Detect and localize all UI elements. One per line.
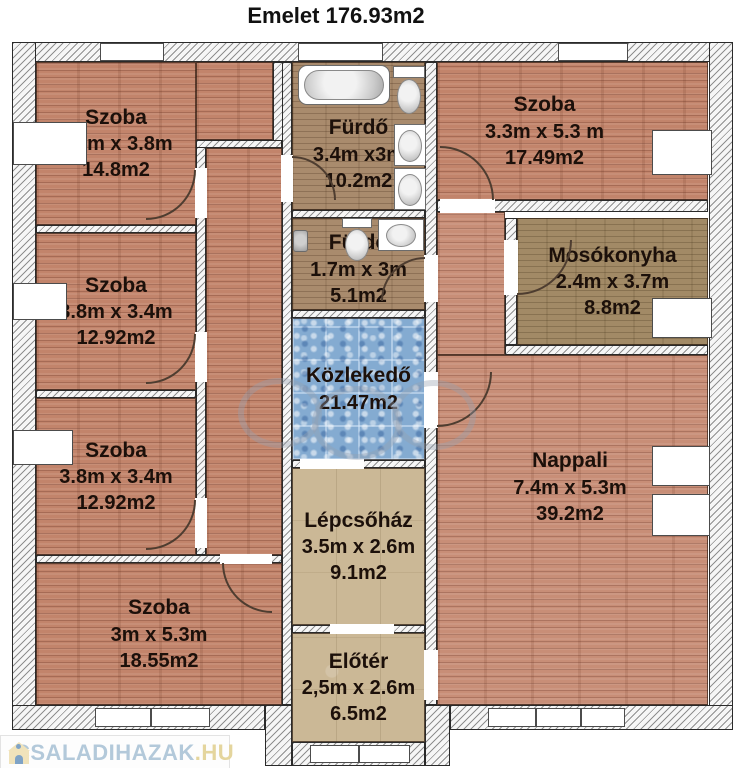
room-name: Szoba [128, 594, 190, 621]
door-gap [504, 240, 518, 295]
room-name: Szoba [514, 91, 576, 118]
window [652, 494, 710, 536]
window-mullion [358, 745, 360, 763]
center-watermark [312, 386, 402, 460]
room-dims: 3.5m x 2.6m [302, 534, 415, 560]
door-gap [440, 199, 495, 213]
bathtub-basin [304, 70, 384, 100]
toilet-bowl [397, 79, 421, 114]
floor-plan: Emelet 176.93m2 Szoba 3.3m x 3.8m 14.8m2… [0, 0, 744, 768]
window [652, 130, 712, 175]
room-dims: 7.4m x 5.3m [513, 475, 626, 501]
wall-h9 [505, 345, 708, 355]
window-mullion [535, 708, 537, 727]
window [652, 446, 710, 486]
toilet-tank [342, 218, 372, 228]
room-area: 17.49m2 [505, 145, 584, 171]
window [13, 430, 73, 465]
window [558, 43, 628, 61]
door-gap [195, 168, 207, 218]
washbasin-bowl [398, 130, 422, 162]
wall-h5 [292, 310, 425, 318]
room-szoba-top-left-extension [196, 62, 273, 140]
corridor-strip [206, 148, 282, 555]
room-name: Szoba [85, 437, 147, 464]
washbasin [378, 219, 424, 251]
window [13, 122, 87, 165]
washbasin [394, 124, 426, 166]
logo-domain: CSALADIHAZAK [14, 740, 195, 765]
porch-pillar-left [265, 705, 292, 766]
washbasin [394, 168, 426, 210]
room-eloter: Előtér 2,5m x 2.6m 6.5m2 [292, 633, 425, 742]
toilet-bowl [345, 229, 369, 261]
wall-outer-right [709, 42, 733, 730]
room-area: 5.1m2 [330, 283, 387, 309]
window [298, 43, 383, 61]
room-lepcsohaz: Lépcsőház 3.5m x 2.6m 9.1m2 [292, 468, 425, 625]
room-name: Lépcsőház [304, 507, 413, 534]
room-dims: 3.8m x 3.4m [59, 464, 172, 490]
room-area: 8.8m2 [584, 295, 641, 321]
window [100, 43, 164, 61]
door-gap [300, 459, 364, 469]
shower-fixture [293, 230, 308, 252]
room-area: 6.5m2 [330, 701, 387, 727]
window-mullion [150, 708, 152, 727]
bathtub [298, 65, 390, 105]
room-dims: 3.4m x3m [313, 142, 404, 168]
room-area: 39.2m2 [536, 501, 604, 527]
room-area: 12.92m2 [77, 325, 156, 351]
porch-pillar-right [425, 705, 450, 766]
room-dims: 3.3m x 5.3 m [485, 119, 604, 145]
center-watermark [238, 378, 322, 448]
room-name: Szoba [85, 104, 147, 131]
nappali-passage [437, 212, 505, 355]
wall-niche-bottom [196, 140, 282, 148]
door-gap [330, 624, 394, 634]
window [488, 708, 625, 727]
center-watermark [392, 380, 476, 450]
room-area: 18.55m2 [120, 648, 199, 674]
door-gap [195, 498, 207, 548]
room-area: 14.8m2 [82, 157, 150, 183]
window [652, 298, 712, 338]
window [310, 745, 410, 763]
room-name: Előtér [329, 648, 389, 675]
wall-h1 [36, 225, 196, 233]
logo-tld: .HU [195, 740, 234, 765]
room-dims: 3m x 5.3m [111, 622, 208, 648]
room-name: Fürdő [329, 114, 388, 141]
wall-h4 [292, 210, 425, 218]
door-gap [424, 255, 438, 302]
window [13, 283, 67, 320]
logo-text: CSALADIHAZAK.HU [14, 740, 234, 766]
room-dims: 2.4m x 3.7m [556, 269, 669, 295]
room-name: Szoba [85, 272, 147, 299]
room-area: 9.1m2 [330, 560, 387, 586]
room-area: 12.92m2 [77, 490, 156, 516]
window-mullion [580, 708, 582, 727]
washbasin-bowl [398, 174, 422, 206]
washbasin-bowl [386, 224, 416, 247]
door-gap [195, 332, 207, 382]
plan-title: Emelet 176.93m2 [0, 3, 672, 29]
room-name: Nappali [532, 447, 608, 474]
toilet-tank [393, 66, 425, 78]
wall-h2 [36, 390, 196, 398]
door-gap [424, 650, 438, 700]
window [95, 708, 210, 727]
room-dims: 2,5m x 2.6m [302, 675, 415, 701]
site-logo: CSALADIHAZAK.HU [0, 735, 230, 768]
room-dims: 3.8m x 3.4m [59, 299, 172, 325]
